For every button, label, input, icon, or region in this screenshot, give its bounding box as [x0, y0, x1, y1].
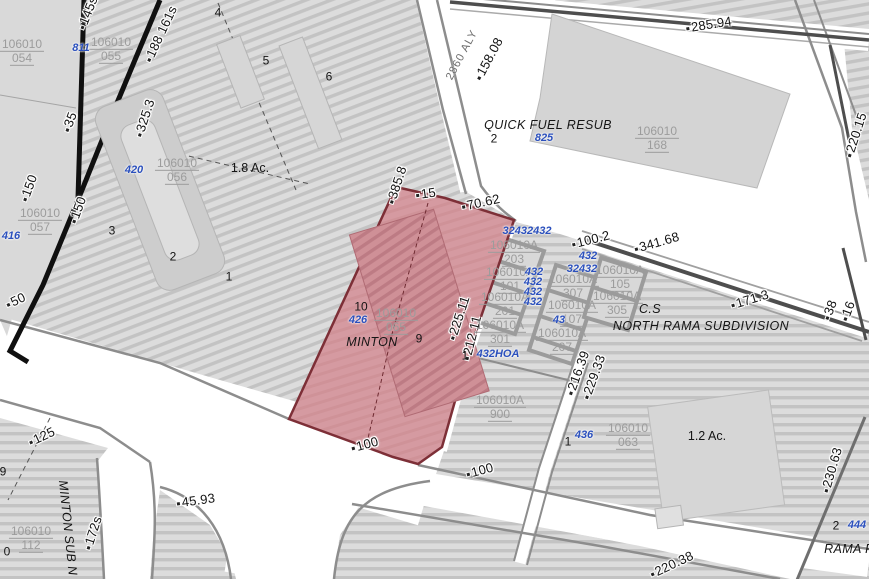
map-graphics — [0, 0, 869, 579]
map-canvas[interactable]: 145s188 161s325.3351501505012545.93172s3… — [0, 0, 869, 579]
